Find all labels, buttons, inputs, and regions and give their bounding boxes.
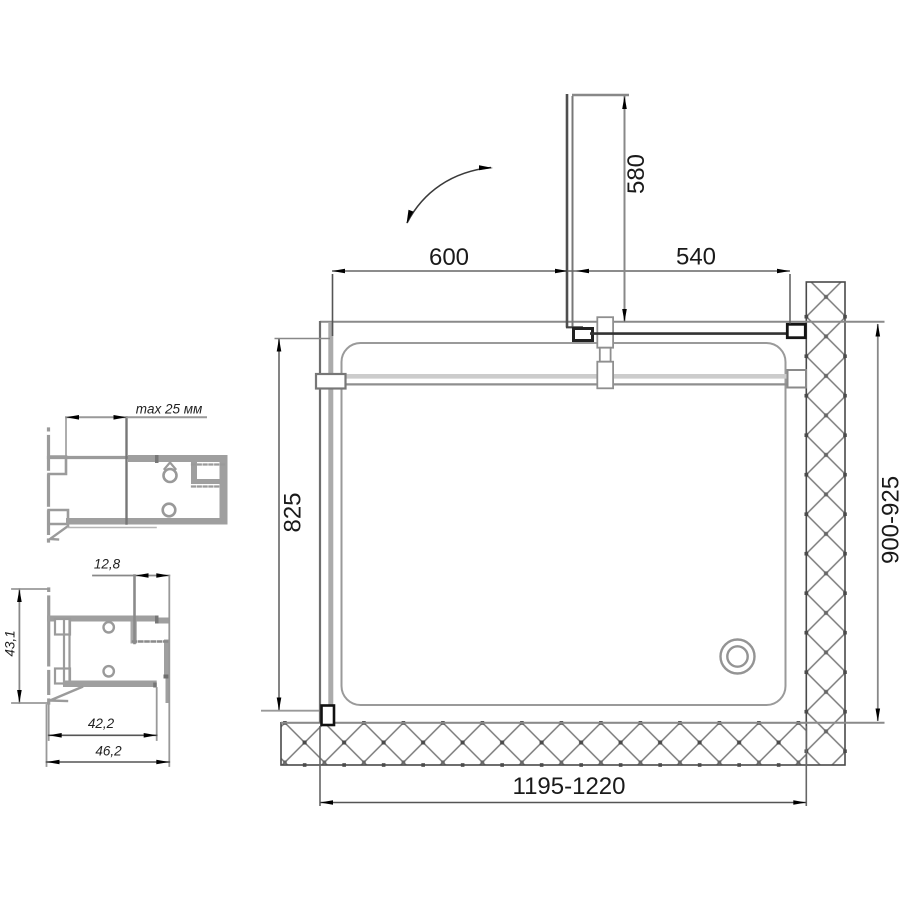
svg-text:540: 540	[676, 244, 716, 271]
svg-text:580: 580	[623, 154, 650, 194]
svg-text:max 25 мм: max 25 мм	[136, 402, 203, 417]
svg-text:42,2: 42,2	[88, 716, 115, 731]
svg-text:600: 600	[429, 244, 469, 271]
svg-text:825: 825	[280, 492, 307, 532]
svg-text:46,2: 46,2	[95, 744, 122, 759]
svg-text:900-925: 900-925	[878, 476, 900, 564]
svg-text:43,1: 43,1	[3, 630, 18, 656]
svg-text:1195-1220: 1195-1220	[513, 773, 626, 800]
svg-text:12,8: 12,8	[94, 557, 121, 572]
